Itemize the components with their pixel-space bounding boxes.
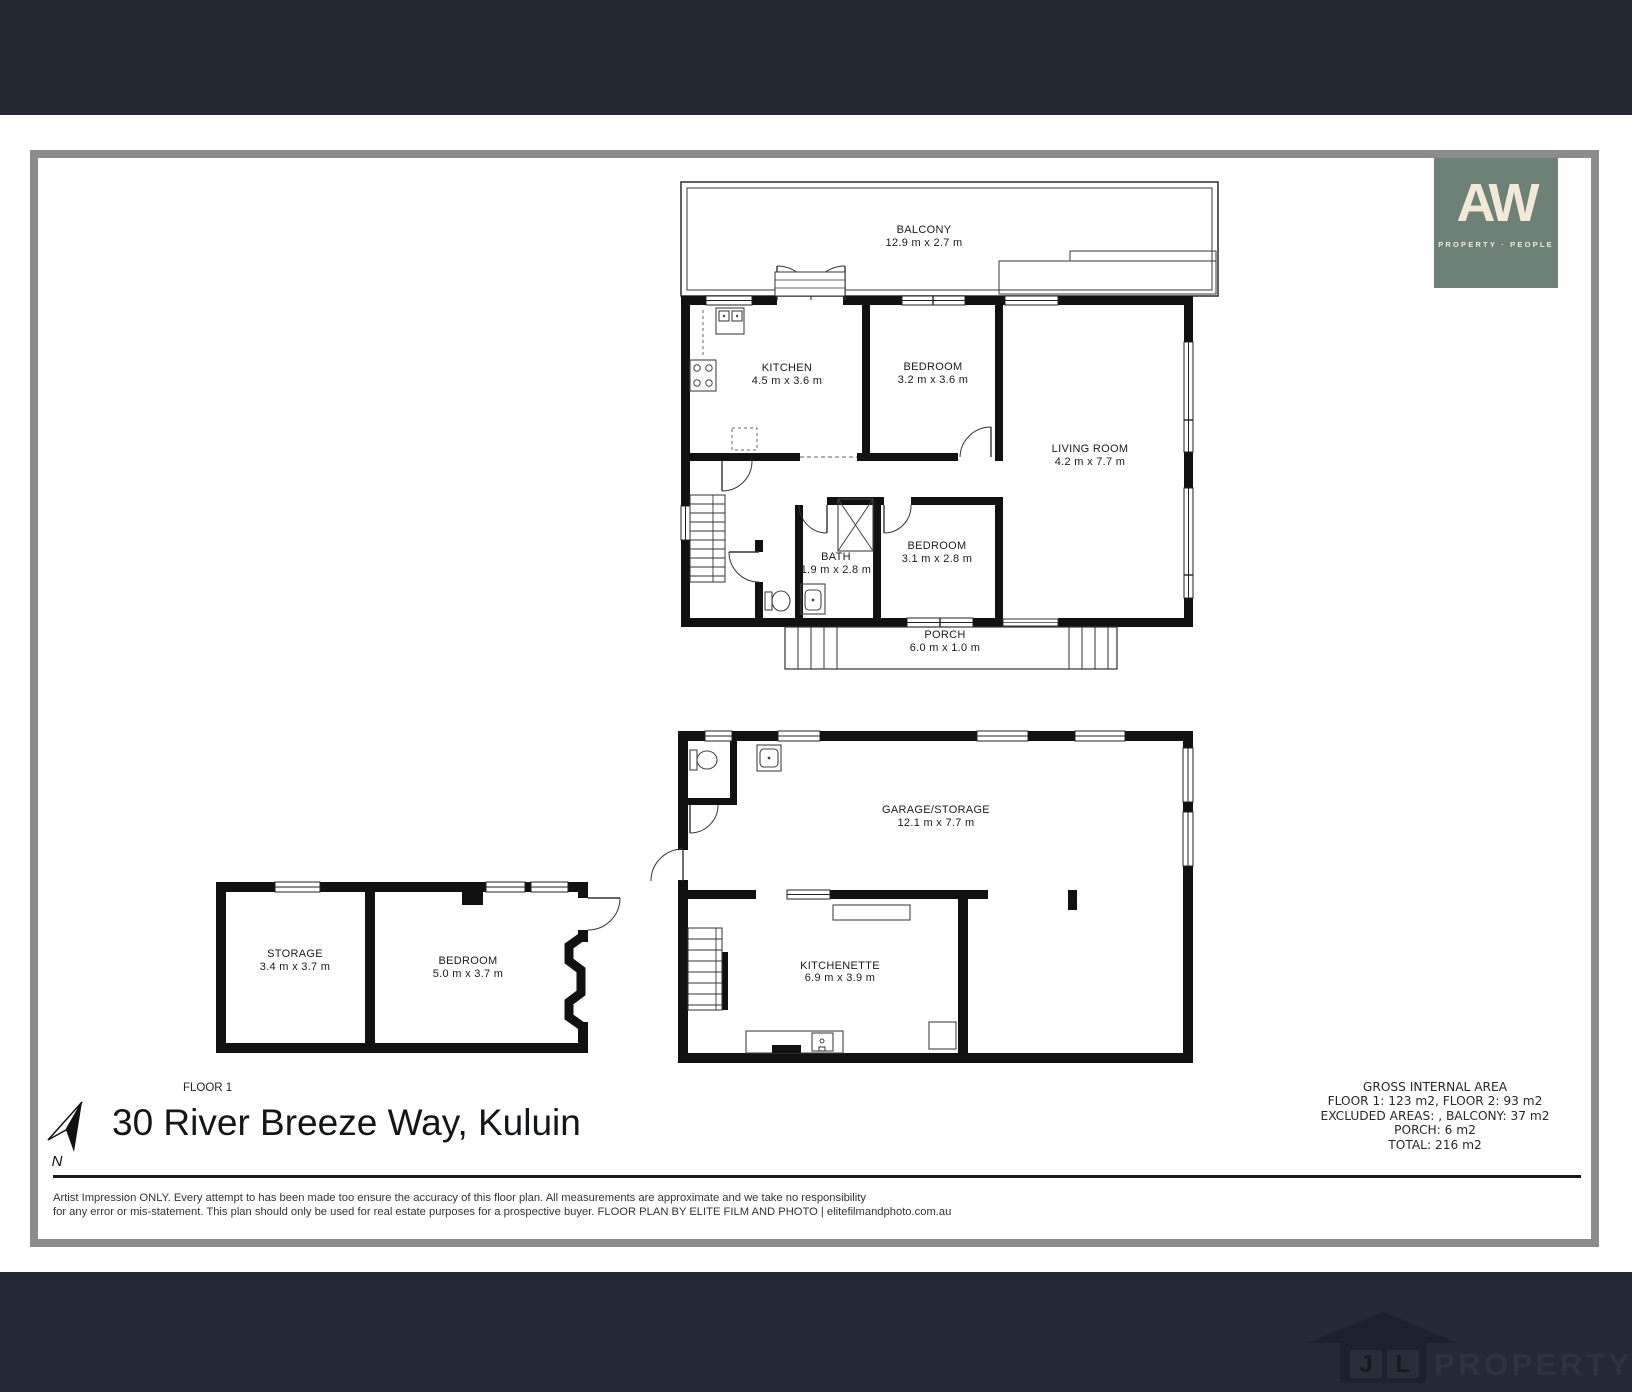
garage-label: GARAGE/STORAGE [882,804,990,816]
bedroom2-label: BEDROOM [908,540,967,552]
area-title: GROSS INTERNAL AREA [1260,1080,1610,1094]
disclaimer-line1: Artist Impression ONLY. Every attempt to… [53,1191,951,1205]
porch-label: PORCH [924,629,965,641]
jl-letter-j: J [1359,1351,1372,1378]
footer-divider-line [53,1175,1581,1178]
floor-plan-page: BALCONY 12.9 m x 2.7 m KITCHEN 4.5 m x 3… [0,0,1632,1392]
kitchenette-dims: 6.9 m x 3.9 m [805,972,876,984]
floor1-bedroom-dims: 5.0 m x 3.7 m [433,968,504,980]
compass-icon: N [48,1102,82,1170]
bedroom1-label: BEDROOM [904,361,963,373]
area-porch: PORCH: 6 m2 [1260,1123,1610,1137]
area-summary: GROSS INTERNAL AREA FLOOR 1: 123 m2, FLO… [1260,1080,1610,1152]
kitchen-label: KITCHEN [762,362,812,374]
area-floors: FLOOR 1: 123 m2, FLOOR 2: 93 m2 [1260,1094,1610,1108]
bath-dims: 1.9 m x 2.8 m [801,564,872,576]
jl-letter-l: L [1396,1351,1411,1378]
fixtures-layer [690,308,956,1053]
storage-dims: 3.4 m x 3.7 m [260,961,331,973]
jl-property-logo: J L PROPERTY [1308,1312,1632,1383]
garage-dims: 12.1 m x 7.7 m [898,817,975,829]
area-excluded: EXCLUDED AREAS: , BALCONY: 37 m2 [1260,1109,1610,1123]
bedroom2-dims: 3.1 m x 2.8 m [902,553,973,565]
porch-dims: 6.0 m x 1.0 m [910,642,981,654]
area-total: TOTAL: 216 m2 [1260,1138,1610,1152]
disclaimer-text: Artist Impression ONLY. Every attempt to… [53,1191,951,1220]
compass-north-label: N [52,1153,63,1170]
floor-plan-canvas: BALCONY 12.9 m x 2.7 m KITCHEN 4.5 m x 3… [0,0,1632,1392]
balcony-label: BALCONY [897,224,952,236]
aw-monogram: AW [1434,174,1558,232]
aw-tagline: PROPERTY · PEOPLE [1434,240,1558,249]
floor1-caption: FLOOR 1 [183,1082,232,1094]
aw-agency-logo: AW PROPERTY · PEOPLE [1434,158,1558,288]
living-room-dims: 4.2 m x 7.7 m [1055,456,1126,468]
storage-label: STORAGE [267,948,323,960]
property-address: 30 River Breeze Way, Kuluin [112,1102,581,1144]
kitchen-dims: 4.5 m x 3.6 m [752,375,823,387]
disclaimer-line2: for any error or mis-statement. This pla… [53,1205,951,1219]
bath-label: BATH [821,551,851,563]
floor1-bedroom-label: BEDROOM [439,955,498,967]
bedroom1-dims: 3.2 m x 3.6 m [898,374,969,386]
stairs-layer [688,495,725,1010]
balcony-dims: 12.9 m x 2.7 m [886,237,963,249]
living-room-label: LIVING ROOM [1052,443,1129,455]
jl-wordmark: PROPERTY [1434,1347,1632,1382]
windows-layer [275,296,1193,899]
kitchenette-label: KITCHENETTE [800,960,880,972]
